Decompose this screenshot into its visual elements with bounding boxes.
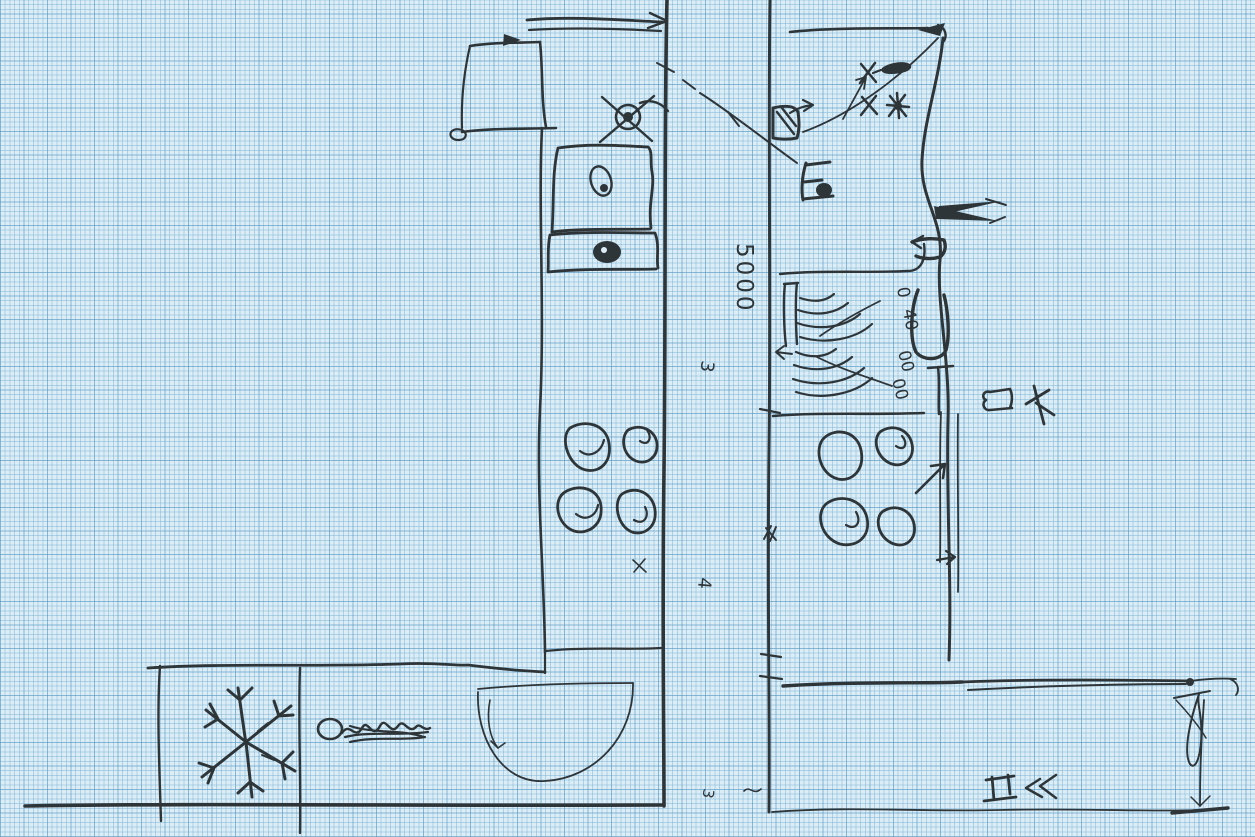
burner <box>821 499 868 545</box>
burner <box>819 432 862 480</box>
swing-arrow <box>488 700 505 748</box>
number-3-upper: 3 <box>695 359 717 373</box>
arrow-icon <box>776 346 792 359</box>
left-plan: 5000 3 4 3 <box>25 0 797 833</box>
appliance-box-1 <box>552 145 653 232</box>
ceiling-lamp-icon <box>600 96 668 142</box>
burner <box>624 427 657 462</box>
counter-left-edge <box>539 128 545 652</box>
label-0: 0 <box>892 285 914 299</box>
crossed-triangles <box>934 199 1006 223</box>
bottom-wall-left <box>25 805 662 806</box>
center-wall <box>25 0 667 806</box>
right-plan-left-wall <box>760 0 782 812</box>
row-top-wall <box>148 663 545 672</box>
e-symbol <box>802 162 833 200</box>
wall-fixture <box>773 100 813 139</box>
glyph-k <box>1026 386 1054 424</box>
arrowhead-icon <box>503 34 521 46</box>
glyph-double-chevron <box>1026 775 1056 798</box>
upper-cabinet-box <box>450 34 556 140</box>
hatch-mark <box>764 526 776 541</box>
number-3-corner: 3 <box>698 787 717 800</box>
counter-curve <box>478 683 633 781</box>
bottom-thin-line <box>772 809 1198 812</box>
right-plan: 0 40 00 00 <box>760 0 1238 813</box>
counter-shelf-line <box>780 244 924 274</box>
row-divider <box>299 668 300 833</box>
top-wall-left <box>527 13 667 31</box>
top-wall-right <box>790 23 946 41</box>
bottom-wall-right <box>783 678 1238 695</box>
x-mark <box>861 96 877 115</box>
pen-loop <box>1187 694 1201 766</box>
number-4: 4 <box>693 577 715 590</box>
label-00-upper: 00 <box>893 348 918 374</box>
glyph-square <box>983 389 1012 410</box>
label-00-lower: 00 <box>887 376 912 402</box>
floorplan-sketch: 5000 3 4 3 <box>0 0 1255 837</box>
step-line <box>545 648 661 673</box>
snowflake-icon <box>199 688 295 797</box>
dimension-5000: 5000 <box>731 243 757 314</box>
narrow-cabinet <box>784 283 798 346</box>
star-scribble <box>887 93 909 118</box>
glyph-bracket-4 <box>984 775 1016 801</box>
arrowhead-icon <box>918 23 945 36</box>
arrowhead-icon <box>912 236 923 248</box>
loop-and-dimension <box>772 691 1228 813</box>
tick-mark <box>760 654 782 679</box>
dashed-leader <box>657 63 797 163</box>
x-mark <box>633 559 646 572</box>
appliance-box-2 <box>548 233 658 273</box>
leader-line <box>815 356 892 386</box>
counter-divider <box>773 366 953 416</box>
fan-shelves <box>776 283 892 396</box>
row-left-wall <box>158 666 161 821</box>
cooktop-left-burners <box>558 424 657 572</box>
squiggle-mark <box>744 789 761 791</box>
burner <box>617 490 655 533</box>
cooktop-right-burners <box>819 428 915 545</box>
pen-loop <box>450 129 465 140</box>
leader-curve <box>803 38 938 132</box>
pill-mark <box>881 62 911 74</box>
scribbled-word <box>318 719 430 742</box>
dimension-arrows <box>916 412 958 592</box>
burner <box>558 488 602 532</box>
leader-line <box>820 301 880 336</box>
burner <box>876 428 912 465</box>
label-40: 40 <box>898 307 921 332</box>
graph-paper-sketch: 5000 3 4 3 <box>0 0 1255 837</box>
burner <box>878 508 914 545</box>
burner <box>565 424 609 471</box>
